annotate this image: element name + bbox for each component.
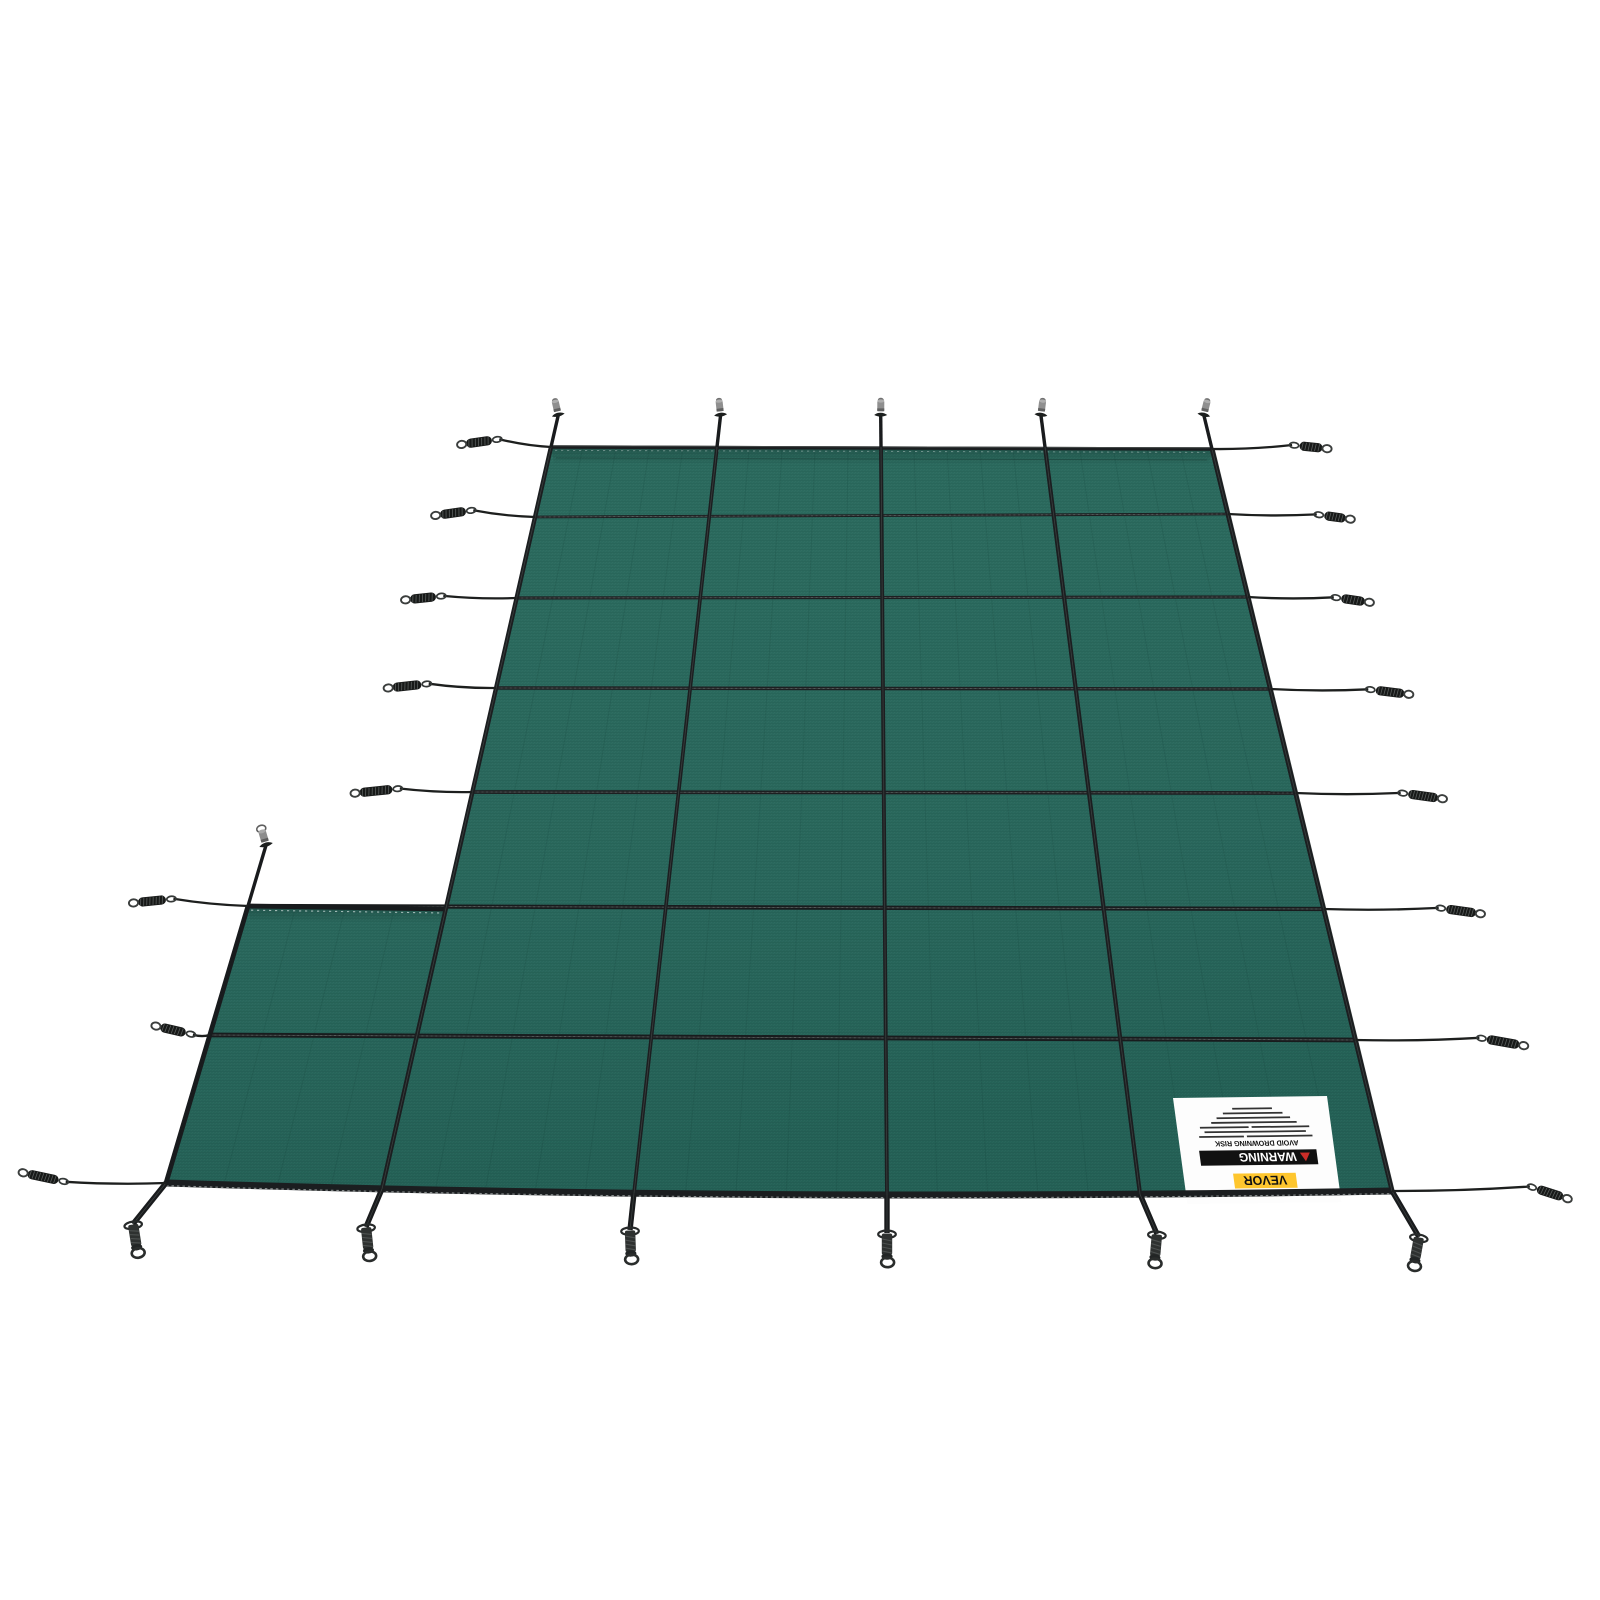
svg-text:VEVOR: VEVOR (1243, 1173, 1288, 1188)
svg-text:AVOID DROWNING RISK: AVOID DROWNING RISK (1214, 1138, 1300, 1148)
svg-text:WARNING: WARNING (1238, 1149, 1297, 1164)
